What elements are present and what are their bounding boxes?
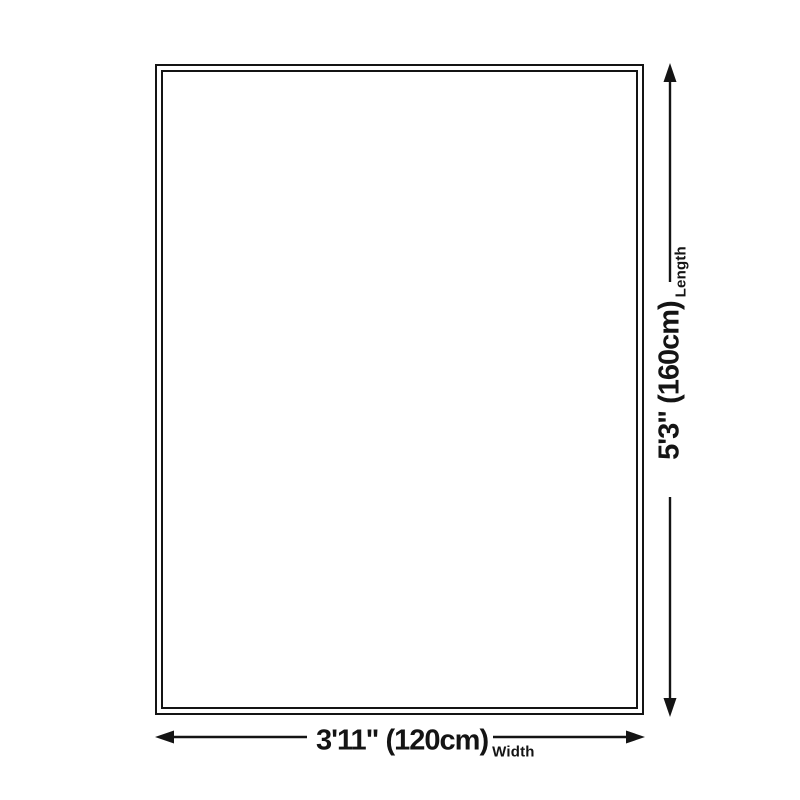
width-dimension-label: 3'11" (120cm) Width [316,725,535,758]
rug-outline [155,64,644,715]
arrow-down-icon [664,698,677,717]
rug-outline-inner [161,70,638,709]
length-name: Length [673,246,690,297]
width-name: Width [492,744,535,761]
dimension-diagram: 5'3" (160cm) Length 3'11" (120cm) Width [0,0,800,800]
length-value: 5'3" (160cm) [654,301,687,460]
length-dimension-label: 5'3" (160cm) Length [654,246,687,460]
width-value: 3'11" (120cm) [316,725,488,758]
arrow-right-icon [626,731,645,744]
